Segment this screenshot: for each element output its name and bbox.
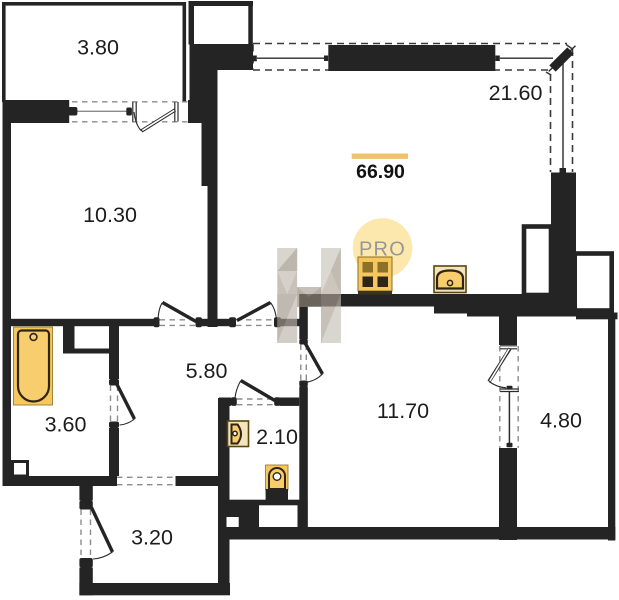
svg-text:4.80: 4.80 xyxy=(540,409,582,433)
svg-text:3.80: 3.80 xyxy=(77,36,119,60)
svg-text:11.70: 11.70 xyxy=(377,399,429,423)
svg-text:2.10: 2.10 xyxy=(256,425,298,449)
svg-text:10.30: 10.30 xyxy=(83,203,137,227)
svg-text:5.80: 5.80 xyxy=(186,359,228,383)
svg-text:3.60: 3.60 xyxy=(45,413,87,437)
svg-text:66.90: 66.90 xyxy=(356,161,405,183)
svg-text:3.20: 3.20 xyxy=(131,526,173,550)
svg-text:21.60: 21.60 xyxy=(489,81,543,105)
